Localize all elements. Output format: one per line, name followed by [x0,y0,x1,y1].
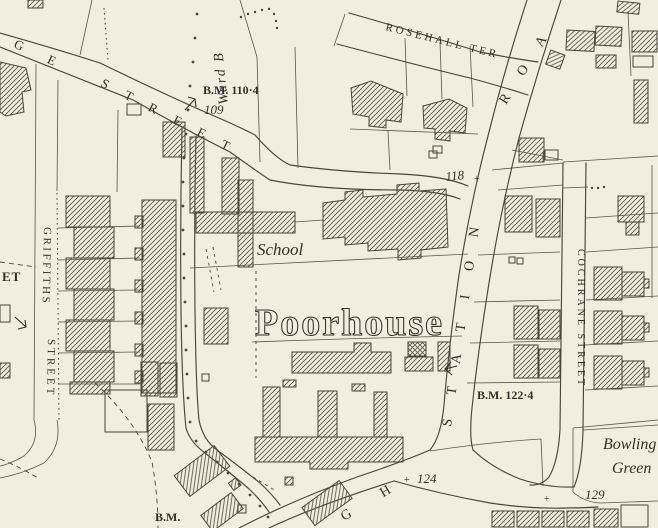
spot-height-109: 109 [204,102,224,117]
building [514,306,538,339]
poorhouse-crosshatched-block [408,342,426,356]
building [28,0,43,8]
poorhouse-wing [263,387,280,437]
street-label-et-fragment: ET [2,269,21,284]
terrace-house [66,320,110,351]
building [190,137,204,213]
terrace-house [70,382,110,394]
bowling-green-label-line1: Bowling [603,436,656,453]
benchmark-110-label: B.M. 110·4 [203,83,259,97]
building [405,357,433,371]
building [135,216,143,228]
building [644,368,649,377]
building [536,199,560,237]
building [0,363,10,378]
terrace-house [66,258,110,289]
building [644,279,649,288]
building [542,511,564,527]
poorhouse-wing [374,392,387,437]
building [135,312,143,324]
building [517,511,539,527]
building [352,384,365,391]
terrace-house [74,351,114,382]
building [514,345,538,378]
building [618,196,644,222]
building [626,222,639,235]
building [617,1,640,14]
building [135,280,143,292]
spot-height-124: 124 [417,471,437,486]
building [204,308,228,344]
terrace-house [74,289,114,320]
spot-height-129: 129 [585,487,605,502]
building [622,361,644,385]
map-canvas[interactable]: G E STREET Ward B B.M. 110·4 109 ROSEHAL… [0,0,658,528]
poorhouse-label: Poorhouse [255,302,444,344]
building [594,509,618,527]
school-annex [196,212,295,233]
building [622,316,644,340]
benchmark-bottom-label: B.M. [155,510,180,524]
cross-mark: + [474,174,480,185]
building [492,511,514,527]
building [505,196,532,232]
school-label: School [257,240,304,259]
building [622,272,644,296]
building [519,138,544,162]
building [644,323,649,332]
building [567,511,589,527]
building [539,310,560,339]
building [594,311,622,344]
building [135,344,143,356]
building [594,267,622,300]
building [135,248,143,260]
building [539,349,560,378]
building [596,55,616,68]
terrace-house [74,227,114,258]
spot-height-118: 118 [445,167,465,184]
building [141,362,158,396]
building [160,363,177,397]
building [594,356,622,389]
benchmark-122-label: B.M. 122·4 [477,388,533,402]
street-label-griffiths-street: STREET [44,339,57,398]
street-label-cochrane: COCHRANE STREET [575,249,586,388]
building [595,26,622,46]
building [148,404,174,450]
building [222,158,239,214]
building [566,30,595,51]
building [632,31,657,52]
building [634,80,648,123]
terrace-house [66,196,110,227]
building [283,380,296,387]
building [285,477,293,485]
cross-mark: + [544,494,550,505]
bowling-green-label-line2: Green [612,460,651,477]
poorhouse-wing [318,391,337,437]
street-label-griffiths: GRIFFITHS [40,227,53,305]
